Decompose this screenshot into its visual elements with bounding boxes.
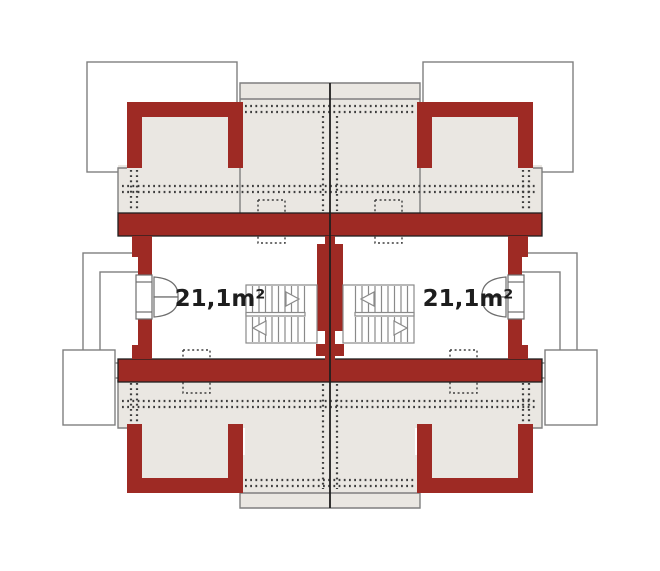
floor-bottom-inner-right — [330, 380, 415, 493]
floor-dormer-top-left — [142, 117, 228, 165]
wall-right-pier-lower — [508, 345, 528, 359]
floor-dormer-bottom-right — [432, 428, 518, 478]
wall-right-above-window — [508, 257, 522, 275]
room-area-label-right: 21,1m² — [423, 286, 514, 312]
wall-left-pier-upper — [132, 236, 152, 257]
roof-outline-bottom-right — [545, 350, 597, 425]
wall-right-pier-upper — [508, 236, 528, 257]
floor-bottom-inner-left — [245, 380, 330, 493]
staircase-right-unit — [343, 285, 414, 343]
floor-dormer-bottom-left — [142, 428, 228, 478]
floor-dormer-top-right — [432, 117, 518, 165]
wall-right-below-window — [508, 319, 522, 345]
floor-plan-canvas: 21,1m² 21,1m² — [0, 0, 660, 571]
roof-outline-bottom-left — [63, 350, 115, 425]
wall-left-above-window — [138, 257, 152, 275]
wall-left-pier-lower — [132, 345, 152, 359]
stair-landing-edge — [355, 313, 414, 317]
floor-top-inner-right — [330, 102, 415, 213]
floor-plan-page: 21,1m² 21,1m² — [0, 0, 660, 571]
room-area-label-left: 21,1m² — [175, 286, 266, 312]
floor-top-inner-left — [245, 102, 330, 213]
wall-left-below-window — [138, 319, 152, 345]
casement-window-left — [136, 275, 178, 319]
stair-landing-edge — [246, 313, 305, 317]
